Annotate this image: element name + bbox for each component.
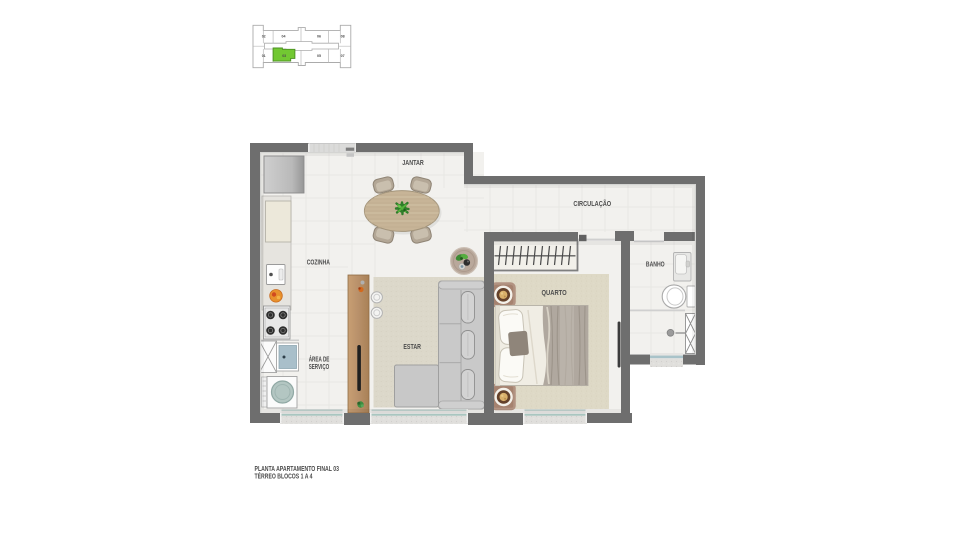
svg-text:SERVIÇO: SERVIÇO: [309, 364, 330, 371]
svg-text:ÁREA DE: ÁREA DE: [309, 354, 330, 363]
svg-text:JANTAR: JANTAR: [402, 160, 424, 167]
svg-text:06: 06: [317, 35, 321, 39]
svg-text:04: 04: [282, 35, 286, 39]
svg-text:BANHO: BANHO: [646, 262, 665, 269]
svg-text:01: 01: [262, 54, 266, 58]
svg-text:05: 05: [317, 54, 321, 58]
svg-text:TÉRREO BLOCOS 1 A 4: TÉRREO BLOCOS 1 A 4: [255, 472, 314, 481]
svg-text:QUARTO: QUARTO: [542, 290, 568, 297]
svg-text:07: 07: [341, 54, 345, 58]
svg-text:03: 03: [282, 54, 286, 58]
svg-text:02: 02: [262, 35, 266, 39]
svg-text:COZINHA: COZINHA: [307, 259, 330, 266]
svg-text:CIRCULAÇÃO: CIRCULAÇÃO: [573, 199, 611, 208]
svg-text:08: 08: [341, 35, 345, 39]
svg-text:ESTAR: ESTAR: [403, 344, 421, 351]
